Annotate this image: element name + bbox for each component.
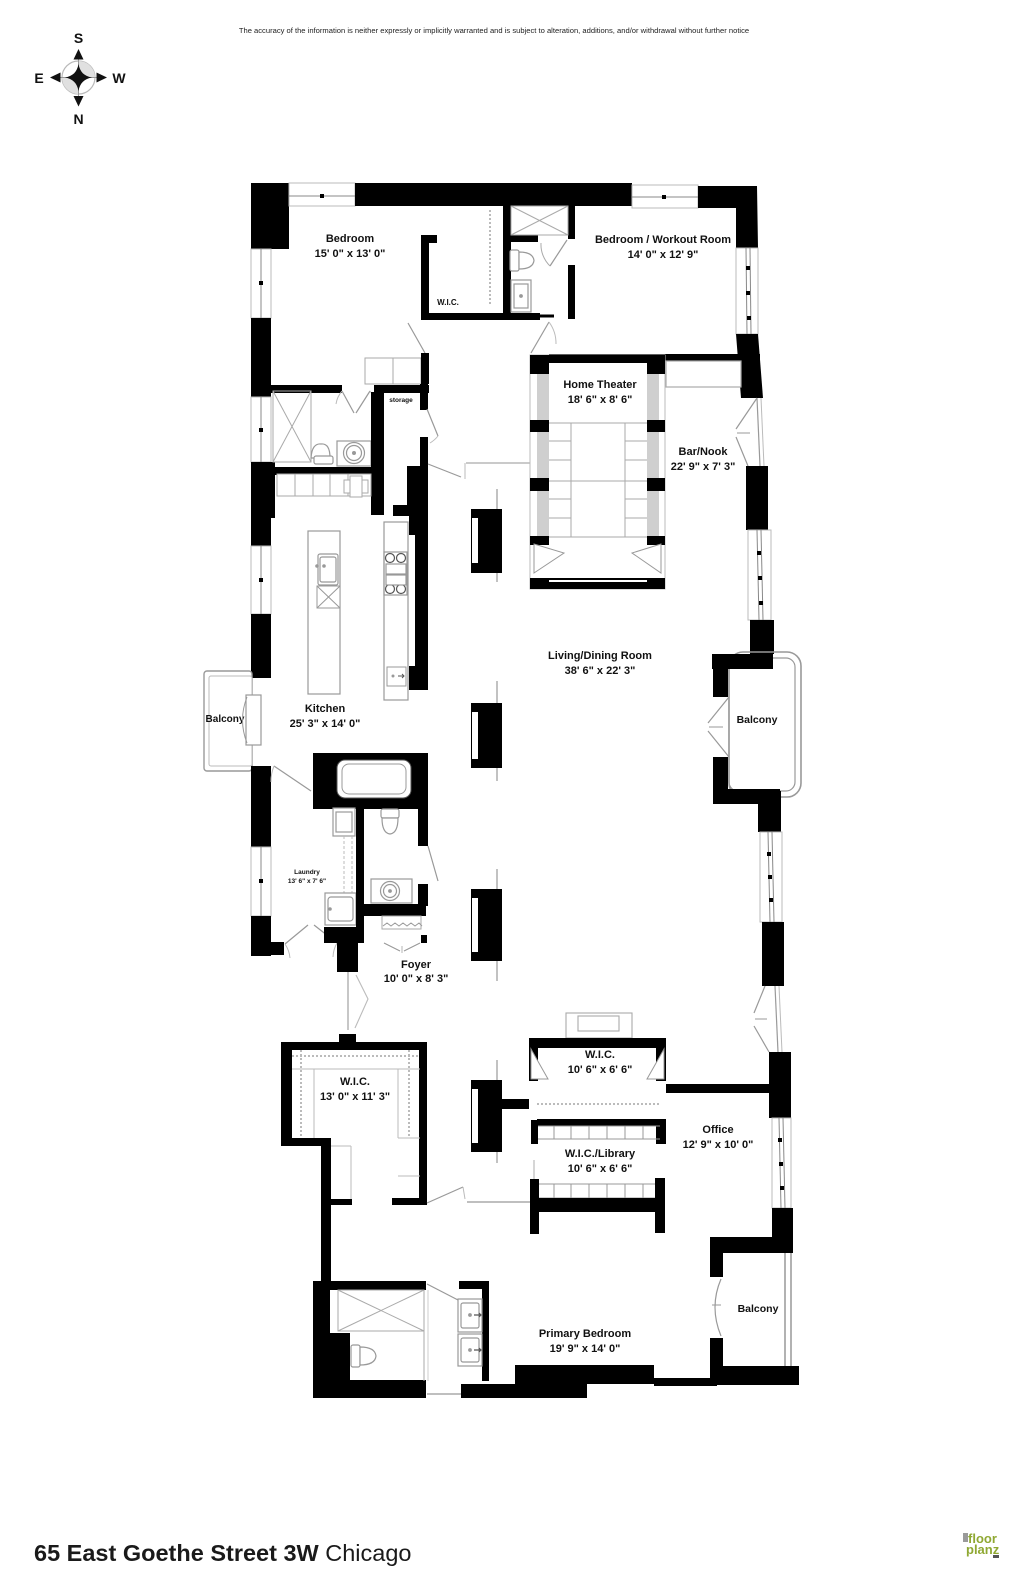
svg-text:12' 9" x 10' 0": 12' 9" x 10' 0"	[683, 1139, 754, 1151]
svg-text:W.I.C.: W.I.C.	[437, 298, 459, 307]
svg-text:10' 0" x 8' 3": 10' 0" x 8' 3"	[384, 973, 449, 985]
svg-text:planz: planz	[966, 1542, 1000, 1557]
svg-text:13' 6" x 7' 6": 13' 6" x 7' 6"	[288, 878, 326, 885]
svg-text:38' 6" x 22' 3": 38' 6" x 22' 3"	[565, 665, 636, 677]
svg-text:Bedroom / Workout Room: Bedroom / Workout Room	[595, 234, 731, 246]
svg-text:65 East Goethe Street 3W Chica: 65 East Goethe Street 3W Chicago	[34, 1540, 411, 1566]
svg-text:Kitchen: Kitchen	[305, 703, 346, 715]
svg-text:10' 6" x 6' 6": 10' 6" x 6' 6"	[568, 1163, 633, 1175]
svg-text:The accuracy of the informatio: The accuracy of the information is neith…	[239, 26, 749, 35]
svg-text:13' 0" x 11' 3": 13' 0" x 11' 3"	[320, 1091, 390, 1103]
svg-text:Living/Dining Room: Living/Dining Room	[548, 650, 652, 662]
svg-text:storage: storage	[389, 397, 413, 404]
svg-text:W.I.C./Library: W.I.C./Library	[565, 1148, 636, 1160]
svg-text:N: N	[73, 111, 83, 127]
svg-text:Foyer: Foyer	[401, 959, 432, 971]
svg-text:19' 9" x 14' 0": 19' 9" x 14' 0"	[550, 1343, 621, 1355]
svg-text:14' 0" x 12' 9": 14' 0" x 12' 9"	[628, 249, 699, 261]
svg-text:Home Theater: Home Theater	[563, 379, 637, 391]
svg-text:22' 9" x 7' 3": 22' 9" x 7' 3"	[671, 461, 736, 473]
svg-text:W.I.C.: W.I.C.	[340, 1076, 370, 1088]
svg-text:18' 6" x 8' 6": 18' 6" x 8' 6"	[568, 394, 633, 406]
svg-text:Primary Bedroom: Primary Bedroom	[539, 1328, 632, 1340]
svg-text:W.I.C.: W.I.C.	[585, 1049, 615, 1061]
svg-text:Laundry: Laundry	[294, 869, 320, 876]
svg-text:25' 3" x 14' 0": 25' 3" x 14' 0"	[290, 718, 361, 730]
svg-text:10' 6" x 6' 6": 10' 6" x 6' 6"	[568, 1064, 633, 1076]
svg-text:E: E	[34, 70, 43, 86]
svg-text:Bedroom: Bedroom	[326, 233, 375, 245]
svg-text:Balcony: Balcony	[738, 1303, 779, 1315]
svg-text:Office: Office	[702, 1124, 733, 1136]
svg-text:Balcony: Balcony	[737, 714, 778, 726]
svg-text:W: W	[112, 70, 126, 86]
svg-text:S: S	[74, 30, 83, 46]
svg-text:Bar/Nook: Bar/Nook	[679, 446, 729, 458]
svg-text:Balcony: Balcony	[206, 714, 245, 725]
svg-text:15' 0" x 13' 0": 15' 0" x 13' 0"	[315, 248, 386, 260]
